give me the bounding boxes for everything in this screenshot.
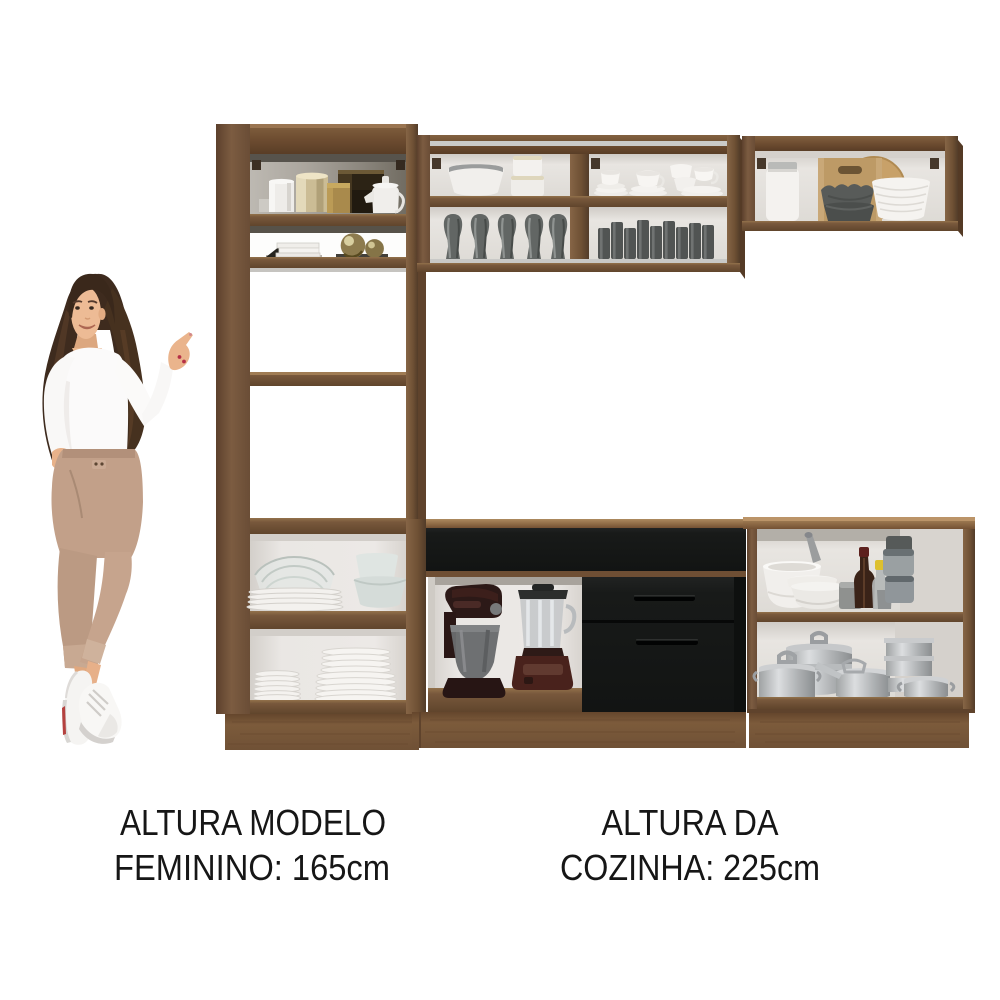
- svg-text:COZINHA: 225cm: COZINHA: 225cm: [560, 847, 820, 888]
- svg-text:ALTURA MODELO: ALTURA MODELO: [120, 802, 386, 843]
- svg-text:ALTURA DA: ALTURA DA: [602, 802, 779, 843]
- svg-text:FEMININO: 165cm: FEMININO: 165cm: [114, 847, 390, 888]
